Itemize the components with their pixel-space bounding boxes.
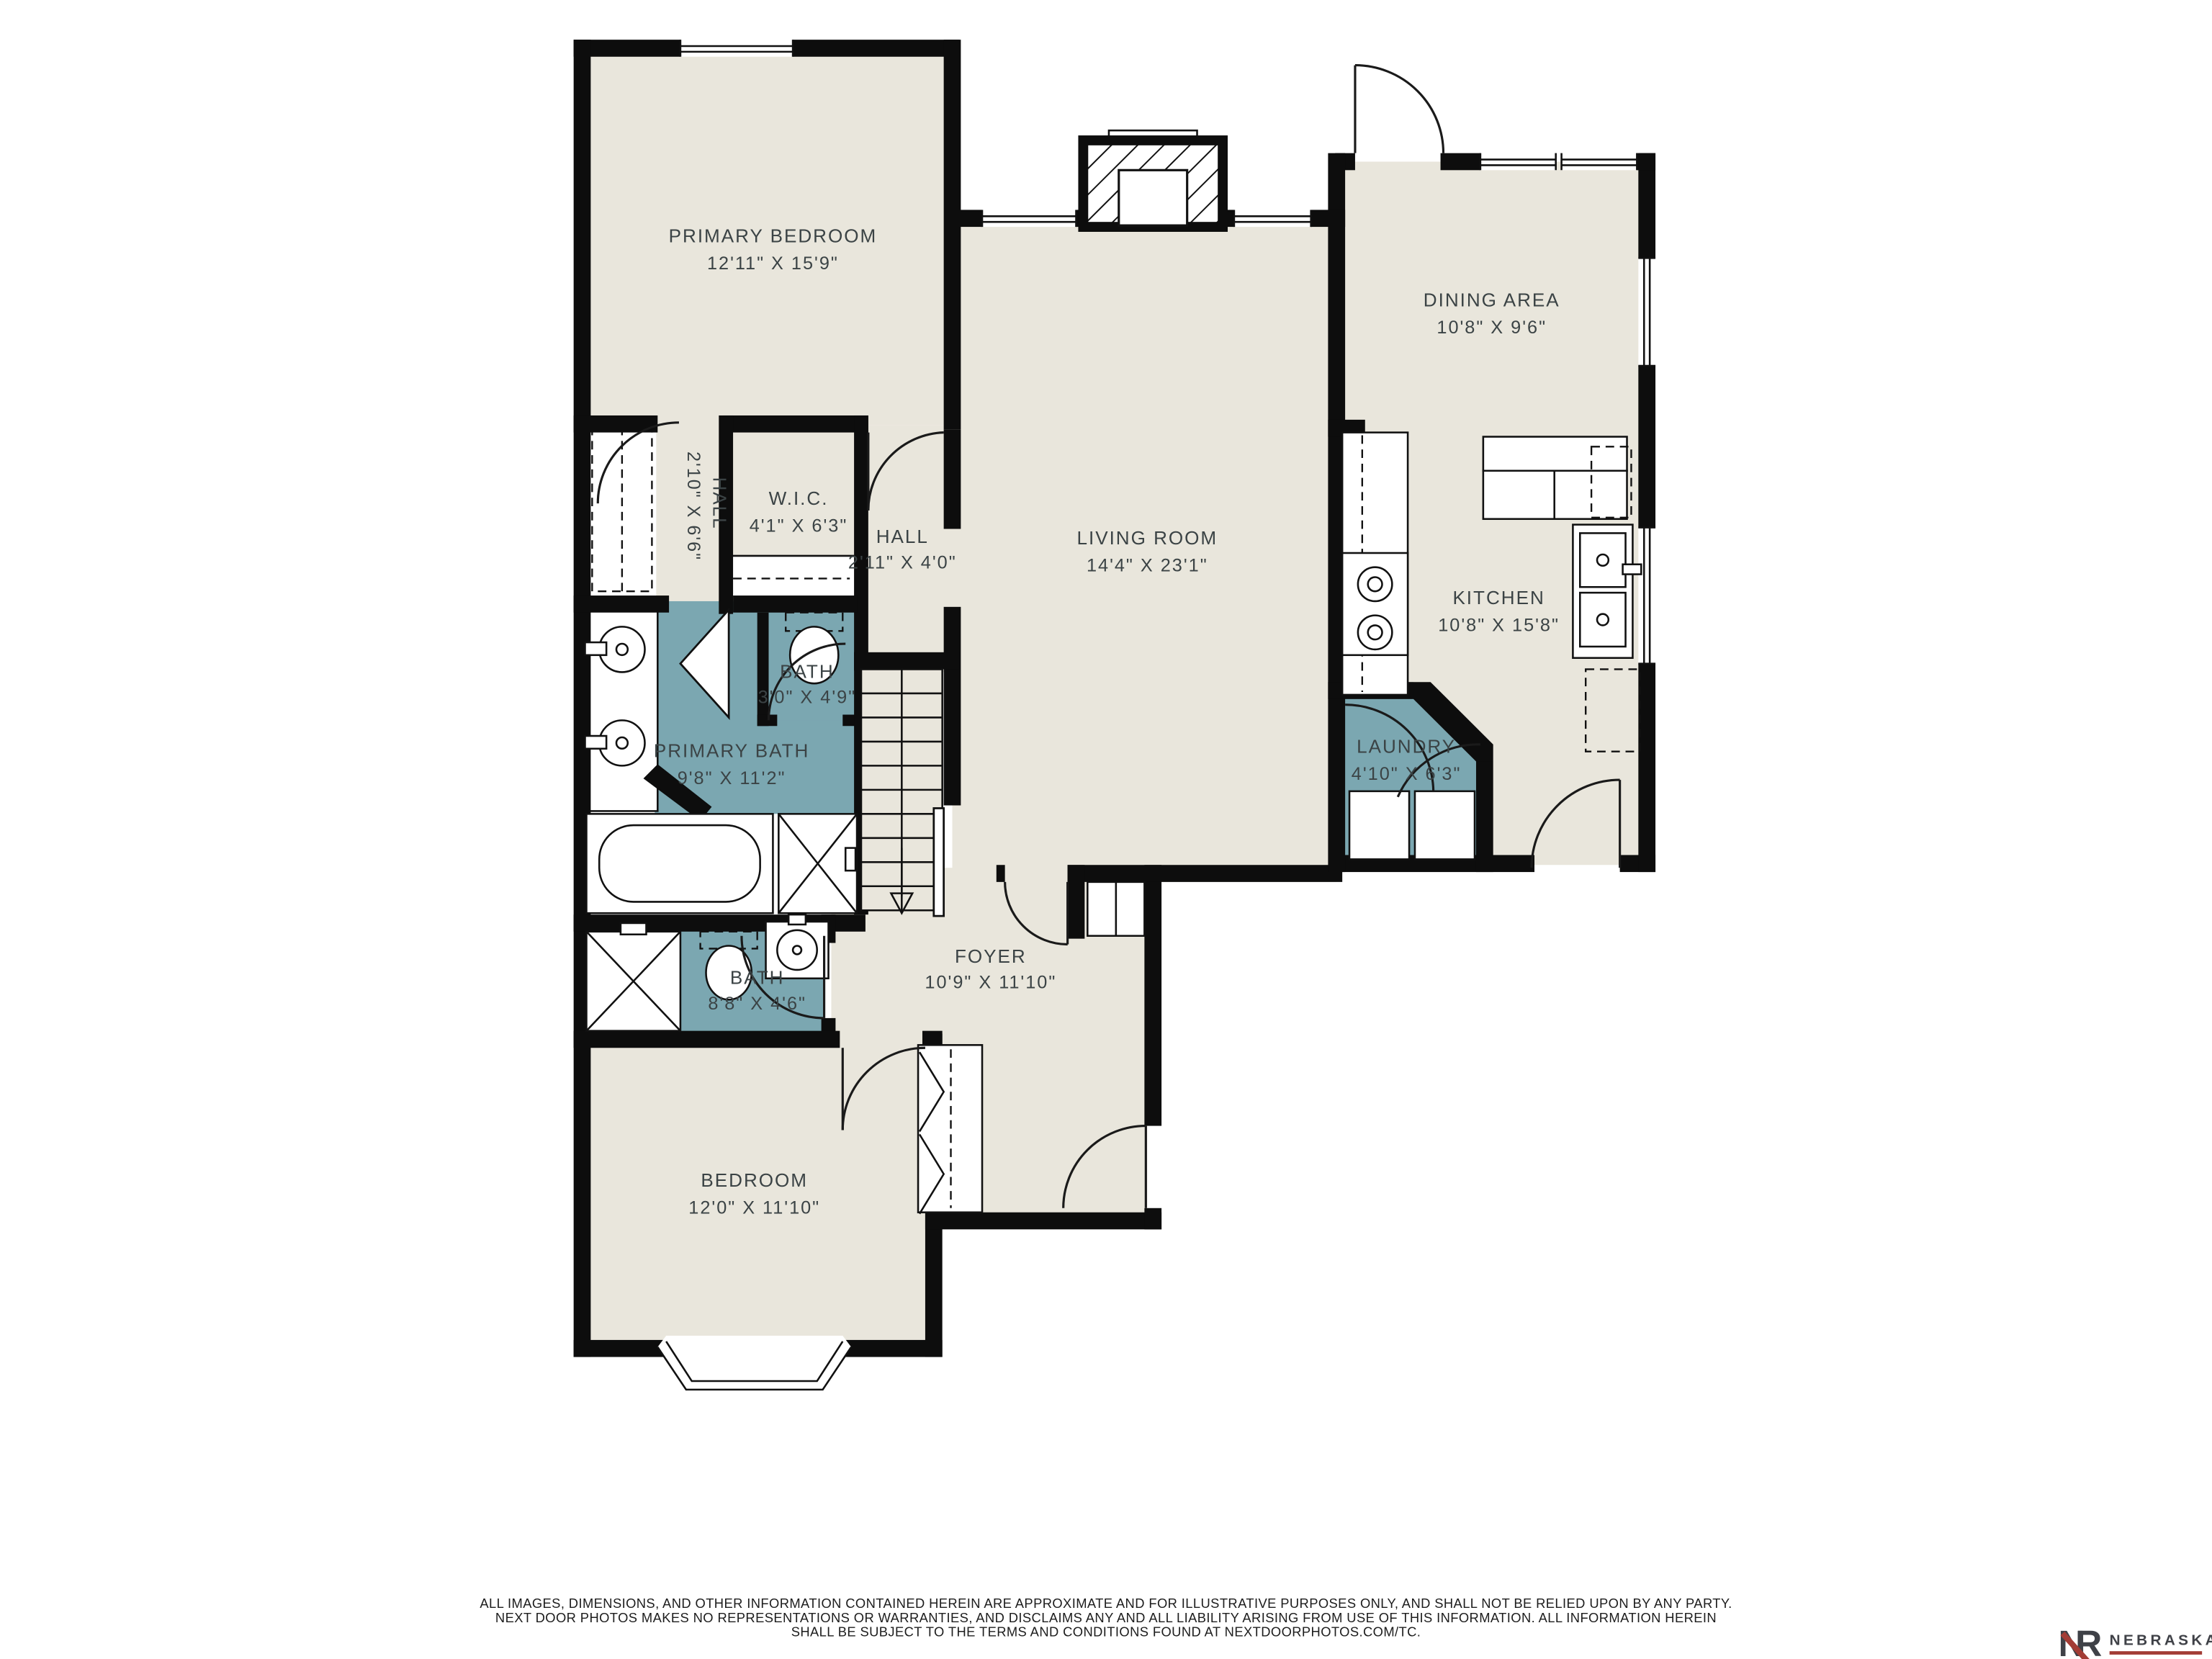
dims-primary-bath: 9'8" X 11'2" (678, 768, 786, 788)
wall-segment (1144, 1208, 1161, 1230)
dims-primary-bedroom: 12'11" X 15'9" (707, 253, 839, 274)
wall-segment (757, 613, 769, 727)
disclaimer-line-1: ALL IMAGES, DIMENSIONS, AND OTHER INFORM… (480, 1596, 1732, 1611)
bath2-shower-head (621, 923, 647, 935)
kitchen-sink-basin-1 (1580, 533, 1625, 587)
dims-hall-lower: 2'11" X 4'0" (848, 553, 957, 573)
wall-segment (1068, 865, 1343, 882)
window-dining-top-1 (1480, 153, 1556, 171)
label-bedroom: BEDROOM (701, 1169, 808, 1191)
bath2-sink-drain (793, 945, 801, 954)
window-dining-top-2 (1562, 153, 1637, 171)
logo-red-underline (2110, 1651, 2202, 1655)
label-laundry: LAUNDRY (1357, 736, 1456, 757)
wall-segment (944, 40, 961, 430)
wall-segment (1638, 366, 1655, 527)
wall-segment (574, 40, 591, 1357)
label-bath-small: BATH (780, 660, 835, 682)
wall-segment (574, 1340, 667, 1357)
label-kitchen: KITCHEN (1452, 587, 1545, 608)
wall-segment (793, 40, 959, 57)
label-hall-upper: HALL (709, 477, 730, 530)
bay-window-bedroom (657, 1336, 851, 1390)
dims-kitchen: 10'8" X 15'8" (1438, 615, 1560, 635)
dims-laundry: 4'10" X 6'3" (1352, 764, 1462, 784)
window-kitchen-right (1638, 528, 1655, 664)
fireplace (1083, 130, 1223, 227)
disclaimer-line-3: SHALL BE SUBJECT TO THE TERMS AND CONDIT… (791, 1624, 1421, 1640)
disclaimer: ALL IMAGES, DIMENSIONS, AND OTHER INFORM… (480, 1596, 1732, 1639)
wall-segment (944, 430, 961, 529)
vanity-faucet-2 (585, 736, 606, 749)
label-primary-bedroom: PRIMARY BEDROOM (669, 225, 878, 247)
label-living-room: LIVING ROOM (1076, 527, 1218, 549)
wall-segment (854, 415, 868, 670)
wall-segment (1068, 865, 1085, 938)
fireplace-insert (1119, 170, 1187, 225)
bathtub-basin (599, 825, 760, 902)
stairs-handrail (934, 808, 944, 916)
wall-segment (1476, 761, 1493, 872)
wall-segment (1638, 664, 1655, 872)
entry-door-dining (1355, 66, 1444, 153)
room-hall-lower-floor (860, 426, 952, 673)
wall-segment (854, 652, 959, 670)
wall-segment (1311, 210, 1345, 227)
floor-plan-page: PRIMARY BEDROOM 12'11" X 15'9" HALL 2'10… (0, 0, 2212, 1659)
dims-dining-area: 10'8" X 9'6" (1437, 318, 1547, 338)
label-dining-area: DINING AREA (1424, 289, 1560, 310)
vanity-faucet-1 (585, 642, 606, 655)
floor-plan: PRIMARY BEDROOM 12'11" X 15'9" HALL 2'10… (0, 0, 2212, 1659)
wall-segment (723, 415, 868, 433)
dims-foyer: 10'9" X 11'10" (925, 973, 1056, 993)
logo-brand-text: NEBRASKA (2110, 1632, 2212, 1648)
kitchen-faucet (1623, 565, 1642, 575)
wall-segment (1144, 865, 1161, 1125)
wall-segment (1637, 153, 1655, 171)
label-hall-lower: HALL (876, 526, 929, 547)
dims-hall-upper: 2'10" X 6'6" (683, 451, 703, 561)
wall-segment (944, 607, 961, 806)
window-living-left (982, 210, 1076, 227)
window-dining-right (1638, 258, 1655, 366)
wall-segment (997, 865, 1005, 882)
kitchen-top-counter (1483, 437, 1627, 471)
disclaimer-line-2: NEXT DOOR PHOTOS MAKES NO REPRESENTATION… (495, 1610, 1717, 1625)
wall-segment (757, 714, 778, 726)
label-bath2: BATH (730, 967, 785, 989)
label-primary-bath: PRIMARY BATH (654, 740, 809, 762)
wall-segment (925, 1213, 1161, 1230)
vanity-sink-1-drain (616, 644, 628, 655)
wall-segment (574, 1031, 840, 1048)
label-foyer: FOYER (955, 945, 1027, 967)
wall-segment (1441, 153, 1480, 171)
label-wic: W.I.C. (769, 487, 829, 509)
washer (1349, 791, 1409, 860)
vanity-sink-2-drain (616, 737, 628, 749)
room-living-floor (953, 218, 1337, 882)
dims-bedroom: 12'0" X 11'10" (688, 1198, 820, 1218)
wall-segment (574, 595, 669, 613)
dims-bath-small: 3'0" X 4'9" (758, 688, 857, 708)
window-living-right (1234, 210, 1311, 227)
dims-wic: 4'1" X 6'3" (750, 516, 848, 536)
dryer (1415, 791, 1475, 860)
nr-monogram-icon: N R (2059, 1623, 2103, 1659)
dims-bath2: 8'8" X 4'6" (708, 994, 806, 1014)
primary-shower-head (845, 848, 855, 871)
dims-living-room: 14'4" X 23'1" (1087, 556, 1208, 576)
window-primary-bedroom (680, 40, 793, 57)
wall-segment (733, 595, 857, 613)
wic-closet-strip (727, 556, 854, 595)
bath2-faucet (788, 914, 806, 925)
stairs (861, 669, 944, 916)
kitchen-sink-basin-2 (1580, 593, 1625, 647)
nebraska-realty-logo: N R NEBRASKA REALTY (2059, 1623, 2212, 1659)
